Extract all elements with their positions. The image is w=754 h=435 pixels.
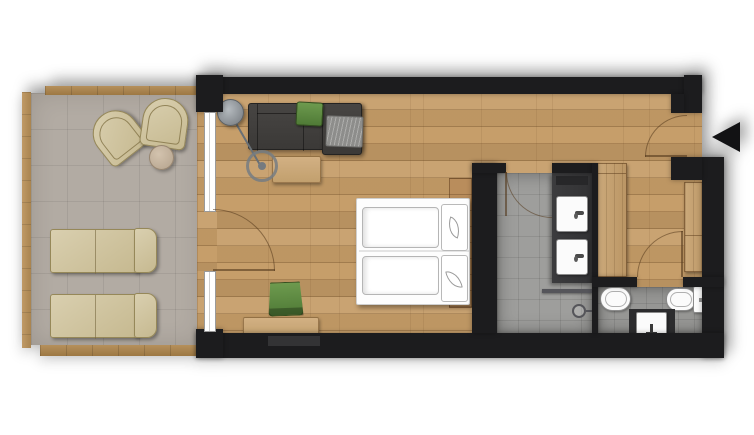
entrance-door-swing (645, 115, 687, 157)
wardrobe-shelf-line (598, 173, 626, 174)
wall-entrance-jamb-bottom (671, 157, 702, 180)
wall-pilaster-top-right (684, 75, 702, 113)
lounge-chair-seat (145, 103, 184, 145)
leaf-decor (445, 269, 463, 290)
toilet-seat (670, 292, 692, 307)
faucet-spout-icon (574, 213, 578, 219)
wardrobe (597, 163, 627, 277)
wall-bathroom-top-right (552, 163, 592, 173)
entrance-arrow-icon (712, 122, 740, 152)
terrace-deck-strip-top (45, 86, 196, 95)
wall-wc-top-right (683, 277, 724, 287)
sofa-armrest (257, 104, 258, 151)
wall-top (196, 77, 702, 94)
sun-lounger (50, 294, 138, 338)
wall-bathroom-hallway (592, 163, 598, 333)
sink (556, 239, 588, 275)
vanity-shelf (556, 176, 588, 185)
lounger-seam (95, 230, 96, 274)
leaf-decor (444, 216, 463, 238)
side-table (149, 145, 174, 170)
terrace-deck-strip-bottom (40, 345, 197, 356)
bathroom-door-swing (506, 172, 552, 218)
terrace-window (204, 112, 216, 212)
sun-lounger-backrest (134, 228, 157, 273)
bidet-bowl (605, 291, 627, 307)
wall-pilaster-top-left (196, 75, 223, 112)
sun-lounger (50, 229, 138, 273)
chair-backrest (269, 307, 302, 315)
duvet (362, 256, 439, 295)
wall-pilaster-bottom-left (196, 329, 223, 358)
tv-niche (268, 336, 320, 346)
wall-wc-top-left (592, 277, 637, 287)
green-chair (267, 281, 303, 316)
wc-door-leaf (681, 231, 683, 277)
wall-right (702, 157, 724, 358)
lounger-seam (95, 295, 96, 339)
pillow (441, 255, 468, 302)
sun-lounger-backrest (134, 293, 157, 338)
shower-screen (542, 289, 592, 293)
wall-entrance-jamb-top (671, 94, 684, 113)
terrace-door-swing (213, 209, 275, 271)
sink (556, 196, 588, 232)
faucet-spout-icon (574, 256, 578, 262)
coffee-table (272, 156, 321, 183)
floor-plan-canvas (0, 0, 754, 435)
bidet (600, 287, 631, 311)
blanket (325, 115, 363, 147)
toilet-bowl (666, 288, 696, 311)
wall-bathroom-top-left (472, 163, 506, 173)
wc-door-swing (637, 231, 683, 277)
terrace-door-leaf (213, 269, 275, 271)
floor-lamp-base-hub (258, 162, 266, 170)
duvet (362, 207, 439, 248)
pillow (441, 204, 468, 251)
shower-head-icon (572, 304, 586, 318)
terrace-deck-strip-left (22, 92, 31, 348)
building (0, 0, 754, 435)
wall-bed-bathroom (472, 163, 497, 333)
entrance-door-leaf (645, 155, 687, 157)
terrace-window (204, 271, 216, 332)
bathroom-door-leaf (505, 172, 507, 216)
green-cushion (295, 101, 323, 126)
